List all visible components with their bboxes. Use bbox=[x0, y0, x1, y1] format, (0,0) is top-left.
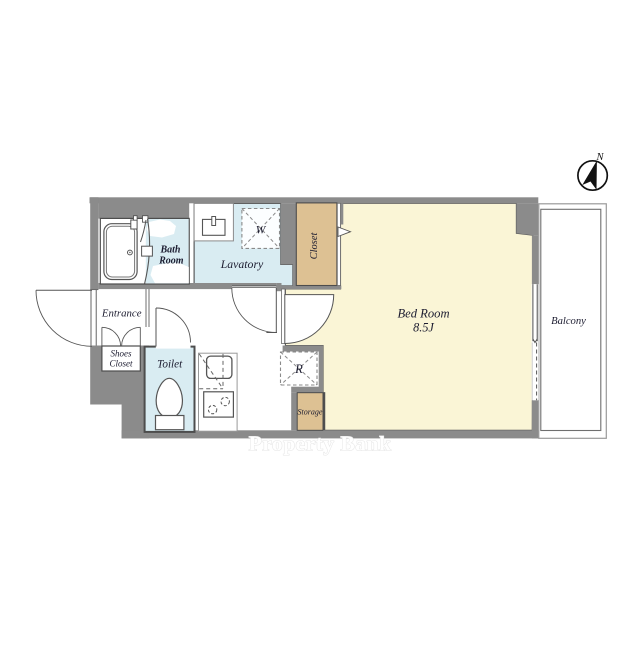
svg-text:R: R bbox=[294, 362, 303, 376]
svg-text:Closet: Closet bbox=[109, 358, 133, 368]
svg-text:Room: Room bbox=[158, 256, 184, 267]
svg-text:Balcony: Balcony bbox=[551, 316, 586, 327]
svg-text:Entrance: Entrance bbox=[101, 308, 142, 320]
svg-text:Closet: Closet bbox=[309, 232, 320, 260]
svg-text:Bath: Bath bbox=[159, 245, 180, 256]
svg-text:Bed Room: Bed Room bbox=[397, 307, 449, 321]
svg-text:8.5J: 8.5J bbox=[413, 321, 434, 335]
svg-text:W: W bbox=[256, 224, 267, 236]
svg-text:Toilet: Toilet bbox=[157, 358, 183, 370]
svg-text:Property Bank: Property Bank bbox=[249, 432, 392, 456]
svg-text:N: N bbox=[595, 152, 604, 163]
svg-text:Shoes: Shoes bbox=[111, 348, 132, 358]
svg-text:Storage: Storage bbox=[298, 408, 323, 417]
svg-text:Lavatory: Lavatory bbox=[220, 257, 264, 271]
